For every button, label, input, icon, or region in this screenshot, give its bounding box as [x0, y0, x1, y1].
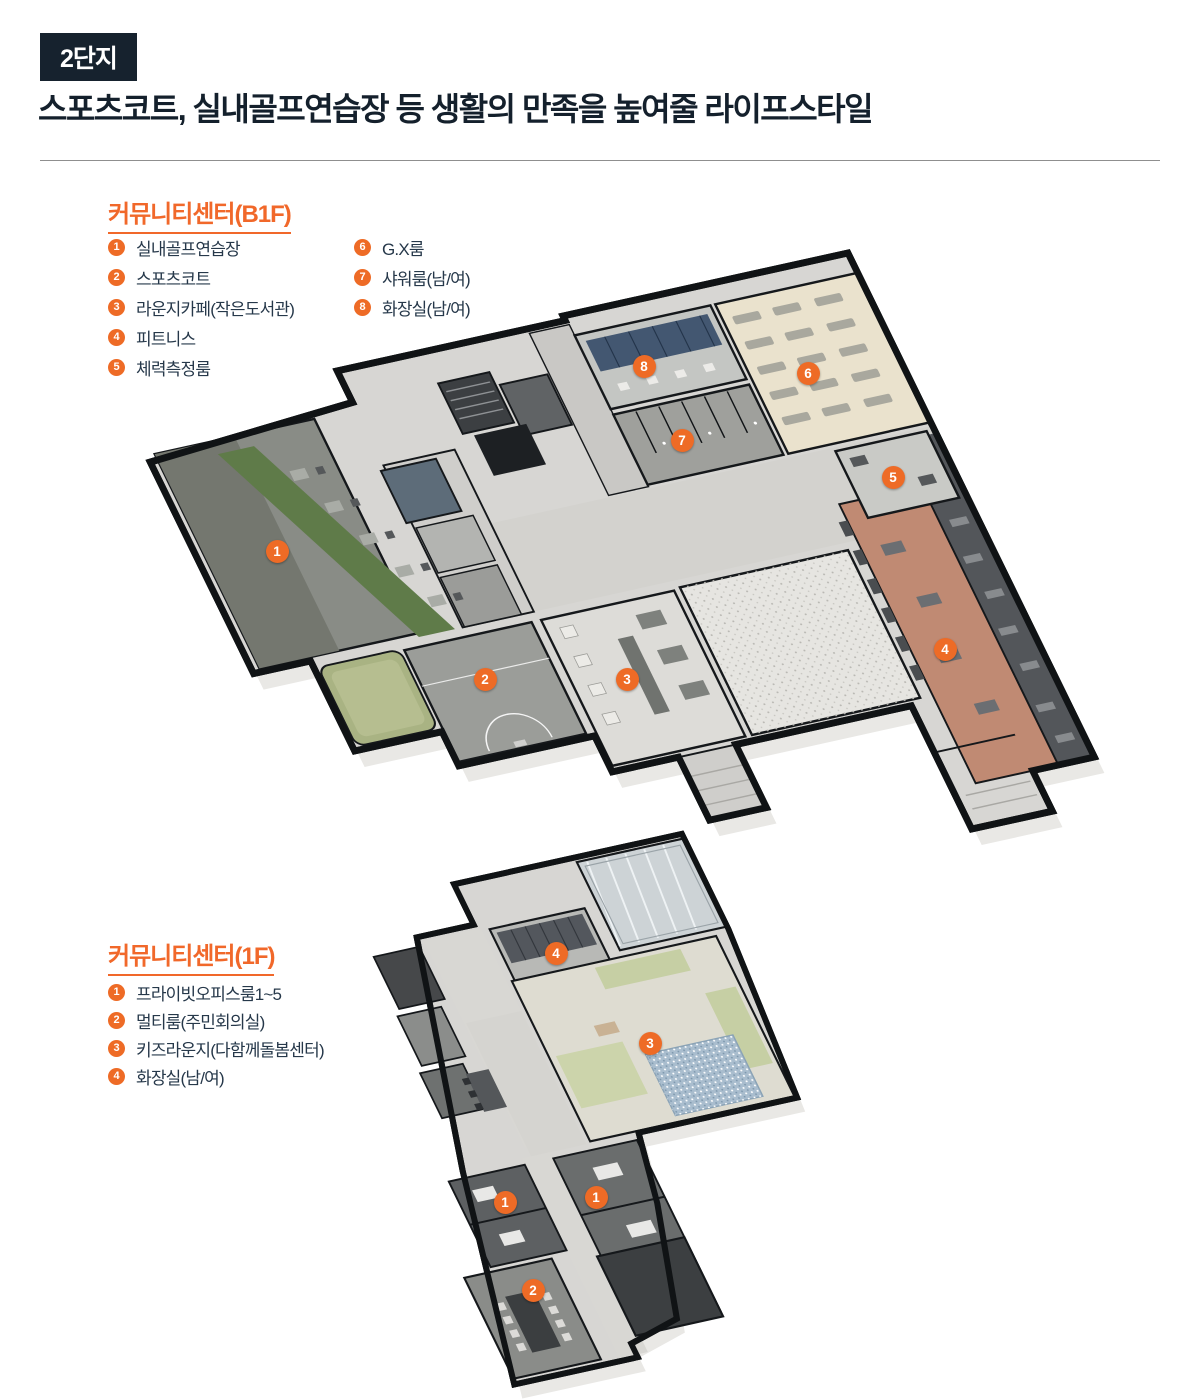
legend-label: 화장실(남/여): [382, 295, 470, 320]
legend-item: 2 스포츠코트: [108, 262, 294, 292]
legend-number-badge: 3: [108, 1040, 125, 1057]
legend-number-badge: 2: [108, 1012, 125, 1029]
legend-number-badge: 7: [354, 269, 371, 286]
legend-label: 라운지카페(작은도서관): [136, 295, 294, 320]
legend-item: 4 피트니스: [108, 322, 294, 352]
legend-label: G.X룸: [382, 235, 424, 260]
f1-legend: 1 프라이빗오피스룸1~5 2 멀티룸(주민회의실) 3 키즈라운지(다함께돌봄…: [108, 978, 324, 1090]
legend-item: 4 화장실(남/여): [108, 1062, 324, 1090]
legend-item: 5 체력측정룸: [108, 352, 294, 382]
legend-number-badge: 3: [108, 299, 125, 316]
f1-section-heading: 커뮤니티센터(1F): [108, 936, 274, 976]
legend-number-badge: 1: [108, 239, 125, 256]
legend-item: 3 키즈라운지(다함께돌봄센터): [108, 1034, 324, 1062]
legend-item: 7 샤워룸(남/여): [354, 262, 470, 292]
legend-item: 3 라운지카페(작은도서관): [108, 292, 294, 322]
b1f-legend-col2: 6 G.X룸 7 샤워룸(남/여) 8 화장실(남/여): [354, 232, 470, 322]
legend-number-badge: 4: [108, 1068, 125, 1085]
brochure-page: 2단지 스포츠코트, 실내골프연습장 등 생활의 만족을 높여줄 라이프스타일: [0, 0, 1200, 1400]
legend-number-badge: 5: [108, 359, 125, 376]
legend-label: 프라이빗오피스룸1~5: [136, 980, 281, 1005]
f1-floorplan: [288, 834, 917, 1399]
legend-item: 2 멀티룸(주민회의실): [108, 1006, 324, 1034]
legend-item: 6 G.X룸: [354, 232, 470, 262]
b1f-legend-col1: 1 실내골프연습장 2 스포츠코트 3 라운지카페(작은도서관) 4 피트니스 …: [108, 232, 294, 382]
legend-number-badge: 1: [108, 984, 125, 1001]
legend-number-badge: 4: [108, 329, 125, 346]
legend-label: 체력측정룸: [136, 355, 210, 380]
legend-item: 1 실내골프연습장: [108, 232, 294, 262]
legend-label: 키즈라운지(다함께돌봄센터): [136, 1036, 324, 1061]
legend-label: 실내골프연습장: [136, 235, 240, 260]
legend-item: 1 프라이빗오피스룸1~5: [108, 978, 324, 1006]
legend-item: 8 화장실(남/여): [354, 292, 470, 322]
legend-label: 피트니스: [136, 325, 195, 350]
legend-number-badge: 8: [354, 299, 371, 316]
legend-label: 화장실(남/여): [136, 1064, 224, 1089]
legend-number-badge: 2: [108, 269, 125, 286]
legend-label: 스포츠코트: [136, 265, 210, 290]
legend-number-badge: 6: [354, 239, 371, 256]
legend-label: 멀티룸(주민회의실): [136, 1008, 264, 1033]
b1f-section-heading: 커뮤니티센터(B1F): [108, 194, 291, 234]
legend-label: 샤워룸(남/여): [382, 265, 470, 290]
